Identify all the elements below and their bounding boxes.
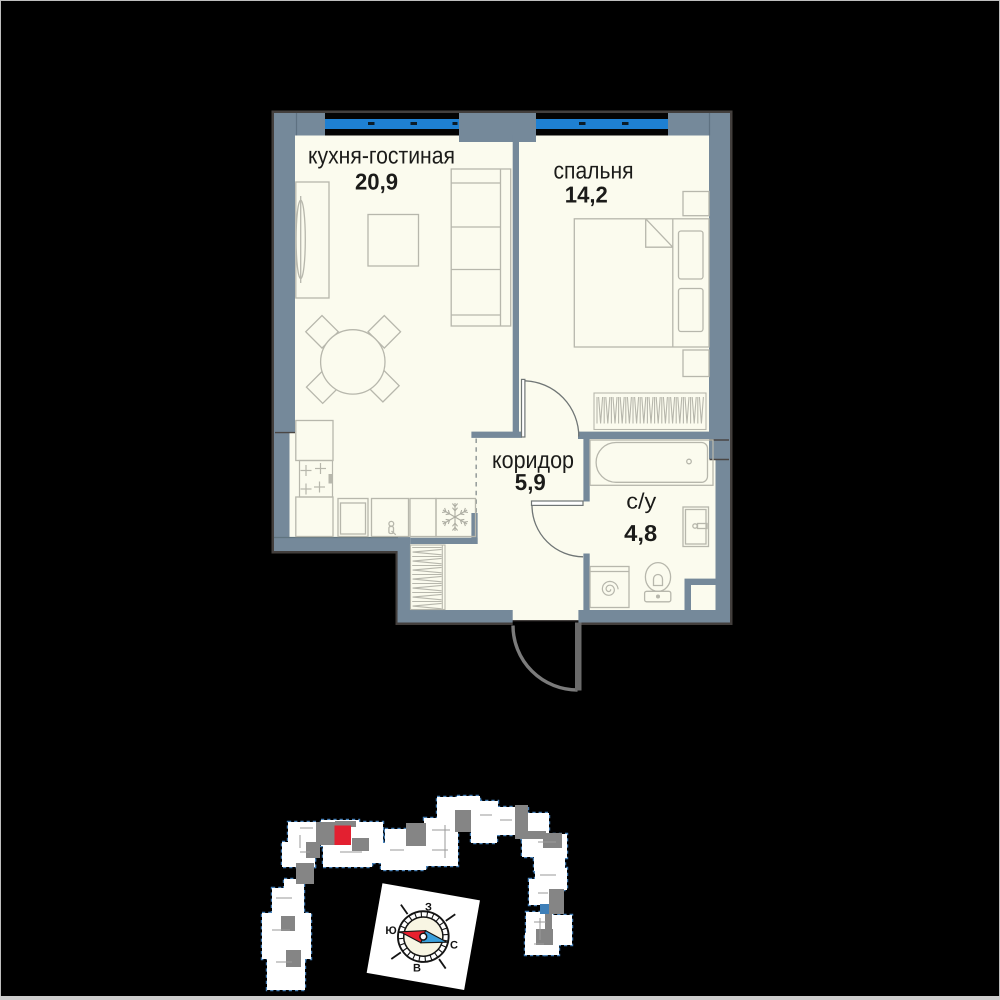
svg-text:спальня: спальня (554, 157, 634, 184)
svg-text:С: С (450, 940, 458, 952)
svg-text:В: В (413, 963, 421, 975)
svg-text:20,9: 20,9 (355, 168, 398, 194)
svg-text:Ю: Ю (385, 925, 396, 937)
svg-text:14,2: 14,2 (565, 181, 608, 207)
svg-text:З: З (425, 902, 432, 914)
svg-text:4,8: 4,8 (624, 520, 657, 546)
svg-text:кухня-гостиная: кухня-гостиная (308, 143, 455, 170)
svg-text:5,9: 5,9 (515, 469, 546, 495)
svg-text:с/у: с/у (626, 489, 656, 514)
